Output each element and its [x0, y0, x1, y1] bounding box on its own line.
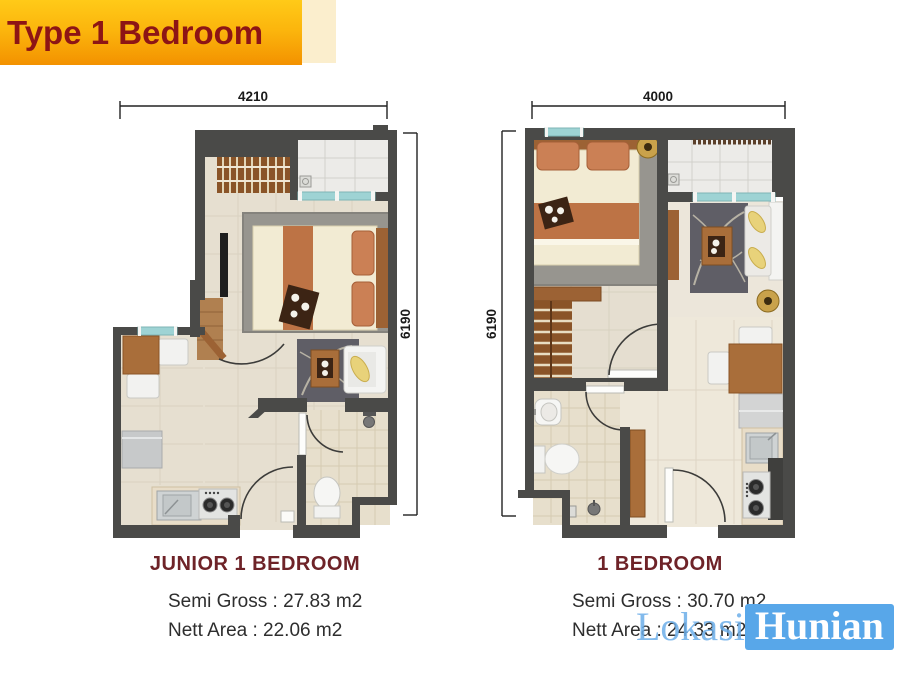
bed-pillow [352, 231, 374, 275]
dining-chair [158, 339, 188, 365]
entry-door-leaf [665, 468, 673, 522]
bathroom-door-leaf [299, 413, 306, 455]
coffee-table [311, 350, 339, 387]
bed-pillow [352, 282, 374, 326]
dim-width-label: 4000 [643, 90, 673, 104]
tv-panel [220, 233, 228, 297]
sofa [745, 202, 783, 280]
stove [743, 472, 770, 518]
one-bedroom-floorplan: 4000 6190 [480, 90, 810, 550]
junior-1-bedroom-floorplan: 4210 6190 [95, 90, 435, 550]
bathroom-side-panel [630, 430, 645, 517]
page-title: Type 1 Bedroom [0, 14, 263, 52]
wardrobe [217, 157, 290, 193]
dining-chair [739, 327, 772, 345]
balcony-drain [300, 176, 311, 187]
bathroom-door-leaf [586, 386, 624, 393]
dining-table [729, 344, 782, 393]
watermark-lokasi: Lokasi [636, 605, 745, 649]
tv-console [668, 210, 679, 280]
shower-head [363, 411, 376, 428]
bedroom-door-leaf [608, 370, 662, 378]
title-banner: Type 1 Bedroom [0, 0, 302, 65]
armchair [344, 346, 386, 393]
dining-window [138, 326, 177, 336]
dining-table [123, 336, 159, 374]
bed-pillow [537, 142, 579, 170]
dim-width-label: 4210 [238, 90, 268, 104]
dining-chair [708, 352, 730, 384]
sliding-window [298, 191, 375, 201]
bedroom-window [545, 127, 583, 137]
entry-door-leaf [281, 511, 294, 522]
bed-fold [531, 239, 639, 245]
bed-headboard [376, 228, 388, 328]
sliding-window [693, 192, 775, 202]
junior-semi-gross: Semi Gross : 27.83 m2 [168, 587, 362, 616]
toilet [314, 477, 340, 518]
dim-height-label: 6190 [398, 309, 413, 339]
banner-accent-strip [302, 0, 336, 63]
toilet [533, 444, 579, 474]
stool [757, 290, 779, 312]
floorplan-page: { "banner": { "title": "Type 1 Bedroom" … [0, 0, 900, 675]
watermark-hunian: Hunian [745, 604, 894, 650]
junior-plan-stats: Semi Gross : 27.83 m2 Nett Area : 22.06 … [168, 587, 362, 645]
dim-height-label: 6190 [484, 309, 499, 339]
junior-nett-area: Nett Area : 22.06 m2 [168, 616, 362, 645]
dining-chair [127, 374, 159, 398]
kitchen-cabinet [739, 394, 783, 428]
bed-pillow [587, 142, 629, 170]
one-bedroom-plan-title: 1 BEDROOM [530, 553, 790, 576]
balcony-drain [668, 174, 679, 185]
stove [199, 489, 237, 519]
junior-plan-title: JUNIOR 1 BEDROOM [100, 553, 410, 576]
coffee-table [702, 227, 732, 265]
watermark: Lokasi Hunian [636, 604, 894, 650]
fridge [122, 431, 162, 468]
